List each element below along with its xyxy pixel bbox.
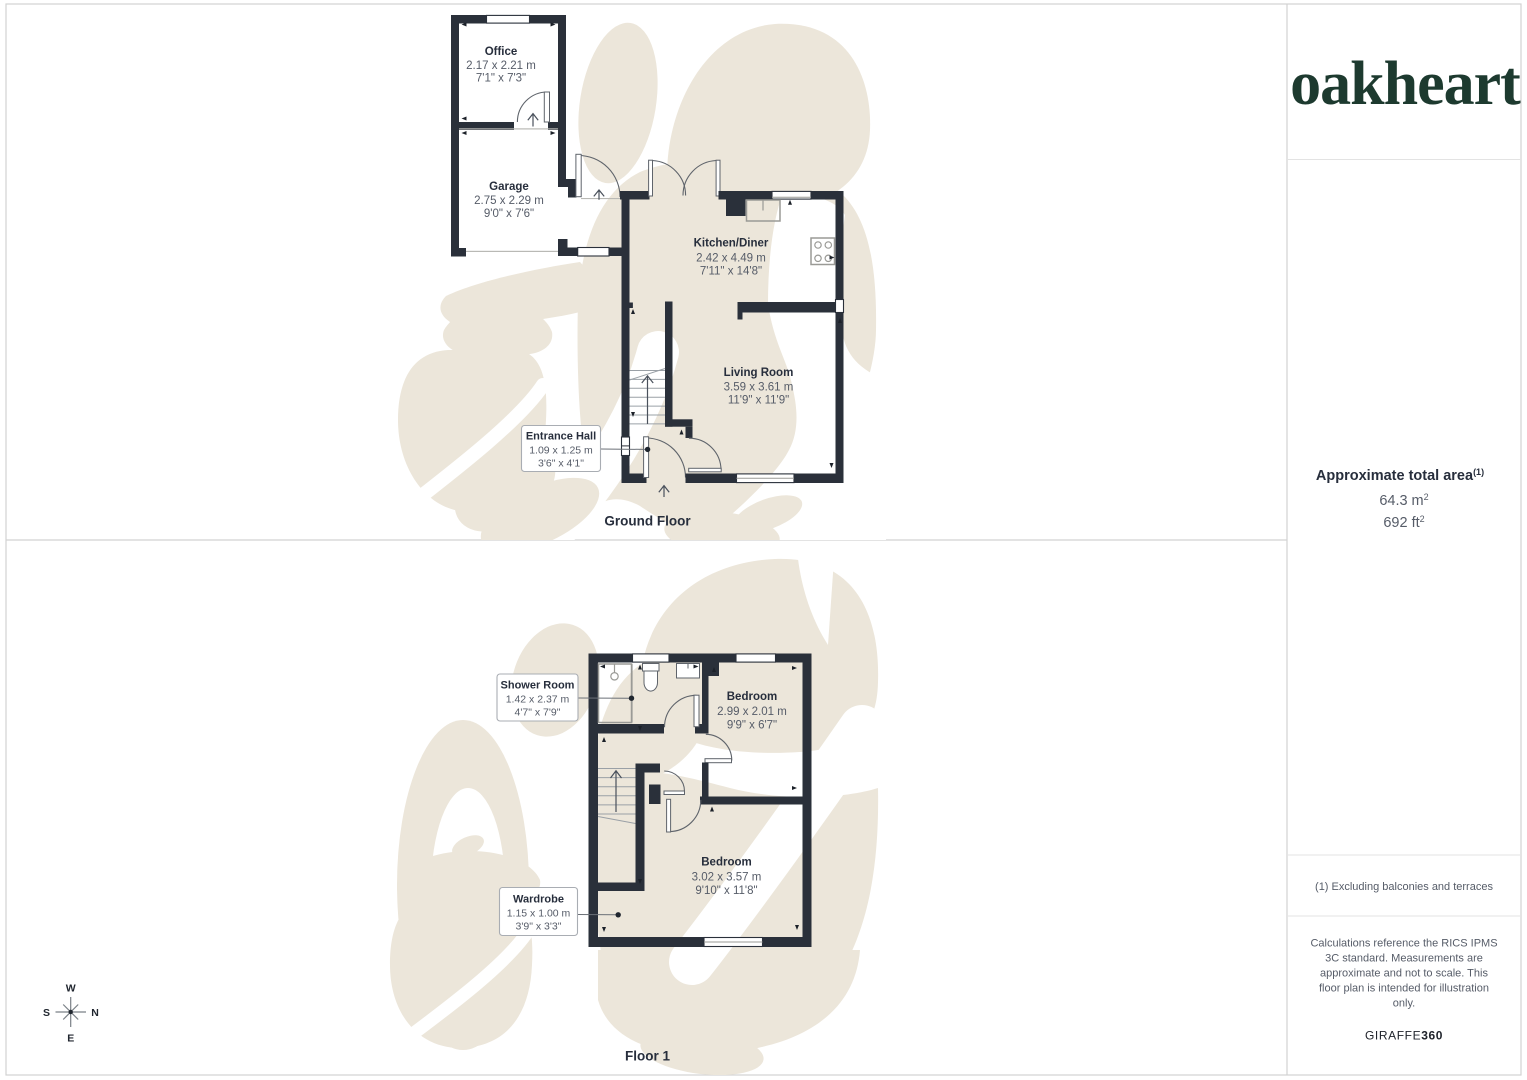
- svg-text:2.42 x 4.49 m: 2.42 x 4.49 m: [696, 253, 766, 265]
- svg-text:3.02 x 3.57 m: 3.02 x 3.57 m: [692, 872, 762, 884]
- svg-text:3'9" x 3'3": 3'9" x 3'3": [516, 921, 562, 933]
- svg-text:floor plan is intended for ill: floor plan is intended for illustration: [1319, 983, 1489, 995]
- svg-text:Bedroom: Bedroom: [701, 857, 751, 869]
- svg-text:3C standard. Measurements are: 3C standard. Measurements are: [1325, 953, 1483, 965]
- svg-text:Wardrobe: Wardrobe: [513, 894, 564, 906]
- svg-text:E: E: [67, 1033, 74, 1045]
- svg-text:oakheart: oakheart: [1290, 50, 1521, 118]
- svg-text:approximate and not to scale.: approximate and not to scale. This: [1320, 968, 1488, 980]
- svg-text:9'9" x 6'7": 9'9" x 6'7": [727, 720, 777, 732]
- svg-text:692 ft2: 692 ft2: [1383, 514, 1424, 531]
- svg-text:Shower Room: Shower Room: [501, 680, 575, 692]
- svg-text:Floor 1: Floor 1: [625, 1049, 670, 1064]
- svg-text:2.17 x 2.21 m: 2.17 x 2.21 m: [466, 60, 536, 72]
- svg-text:2.99 x 2.01 m: 2.99 x 2.01 m: [717, 706, 787, 718]
- svg-text:S: S: [43, 1007, 50, 1019]
- svg-text:Kitchen/Diner: Kitchen/Diner: [694, 238, 769, 250]
- svg-text:(1) Excluding balconies and te: (1) Excluding balconies and terraces: [1315, 881, 1493, 893]
- svg-text:7'11" x 14'8": 7'11" x 14'8": [700, 266, 762, 278]
- svg-text:2.75 x 2.29 m: 2.75 x 2.29 m: [474, 195, 544, 207]
- svg-text:only.: only.: [1393, 998, 1415, 1010]
- svg-text:GIRAFFE360: GIRAFFE360: [1365, 1029, 1443, 1043]
- svg-text:4'7" x 7'9": 4'7" x 7'9": [515, 707, 561, 719]
- svg-text:11'9" x 11'9": 11'9" x 11'9": [728, 395, 789, 407]
- svg-text:Living Room: Living Room: [724, 367, 794, 379]
- svg-text:3.59 x 3.61 m: 3.59 x 3.61 m: [724, 382, 794, 394]
- svg-text:Approximate total area(1): Approximate total area(1): [1316, 467, 1484, 484]
- svg-text:1.42 x 2.37 m: 1.42 x 2.37 m: [506, 694, 570, 706]
- svg-text:W: W: [66, 983, 76, 995]
- svg-text:Bedroom: Bedroom: [727, 691, 777, 703]
- svg-text:1.15 x 1.00 m: 1.15 x 1.00 m: [507, 908, 571, 920]
- svg-text:Entrance Hall: Entrance Hall: [526, 431, 596, 443]
- svg-text:Garage: Garage: [489, 181, 529, 193]
- svg-text:Ground Floor: Ground Floor: [604, 514, 691, 529]
- svg-text:1.09 x 1.25 m: 1.09 x 1.25 m: [529, 445, 593, 457]
- svg-text:64.3 m2: 64.3 m2: [1379, 492, 1428, 509]
- svg-text:9'0" x 7'6": 9'0" x 7'6": [484, 208, 534, 220]
- svg-text:N: N: [91, 1007, 99, 1019]
- svg-text:9'10" x 11'8": 9'10" x 11'8": [695, 885, 757, 897]
- svg-text:Calculations reference the RIC: Calculations reference the RICS IPMS: [1310, 938, 1497, 950]
- svg-text:3'6" x 4'1": 3'6" x 4'1": [538, 458, 584, 470]
- svg-text:Office: Office: [485, 46, 518, 58]
- svg-text:7'1" x 7'3": 7'1" x 7'3": [476, 73, 526, 85]
